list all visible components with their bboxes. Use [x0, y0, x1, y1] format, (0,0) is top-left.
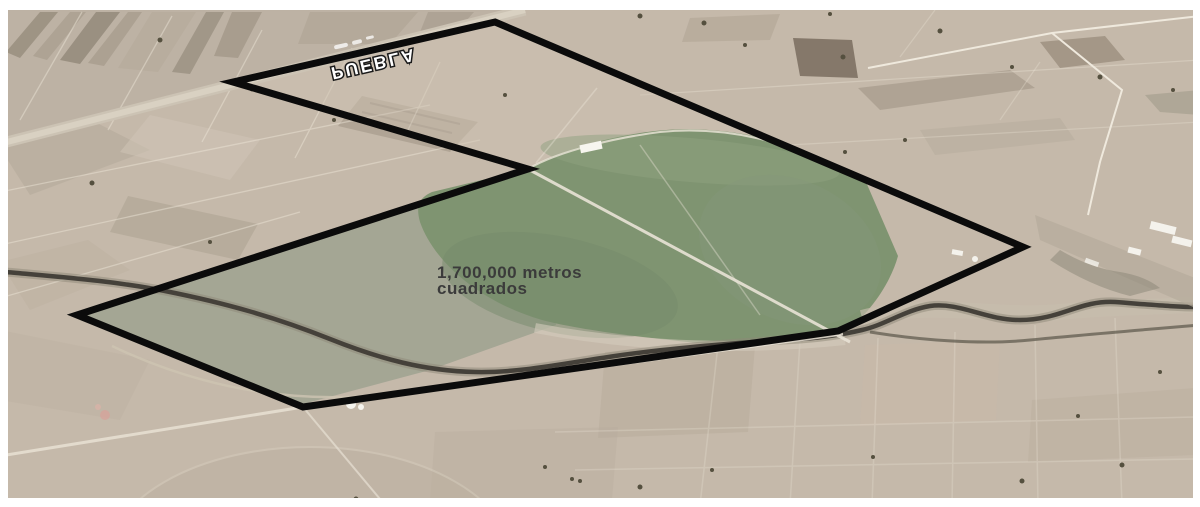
frame-left	[0, 0, 8, 507]
field-patch	[1028, 388, 1195, 462]
frame-bottom	[0, 498, 1200, 507]
aerial-scene: PUEBLA 1,700,000 metros cuadrados	[0, 0, 1200, 507]
frame-top	[0, 0, 1200, 10]
building	[358, 404, 364, 410]
field-patch	[860, 340, 1000, 426]
area-label-line2: cuadrados	[437, 279, 527, 298]
field-patch-dark	[793, 38, 858, 78]
frame-right	[1193, 0, 1200, 507]
pink-feature	[100, 410, 110, 420]
satellite-photo: PUEBLA 1,700,000 metros cuadrados	[0, 0, 1200, 507]
field-patch	[682, 14, 780, 42]
pink-feature	[95, 404, 101, 410]
building	[972, 256, 978, 262]
